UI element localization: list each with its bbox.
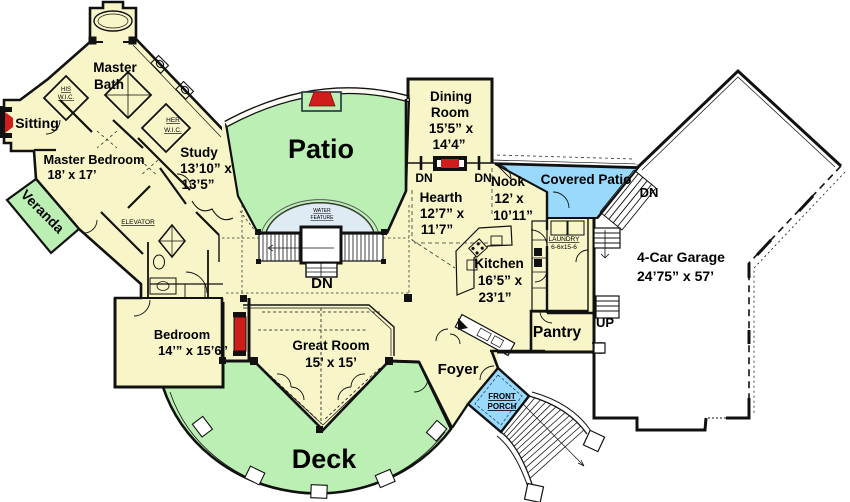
svg-text:Sitting: Sitting bbox=[15, 115, 59, 131]
svg-text:15’5” x: 15’5” x bbox=[429, 121, 474, 136]
svg-text:LAUNDRY: LAUNDRY bbox=[549, 236, 581, 243]
svg-text:13’10” x: 13’10” x bbox=[180, 161, 232, 176]
svg-text:Master: Master bbox=[93, 60, 137, 75]
svg-text:15’ x 15’: 15’ x 15’ bbox=[305, 355, 357, 370]
svg-text:Covered Patio: Covered Patio bbox=[541, 172, 632, 187]
svg-text:Pantry: Pantry bbox=[533, 324, 582, 341]
svg-text:PORCH: PORCH bbox=[488, 402, 517, 411]
svg-text:ELEVATOR: ELEVATOR bbox=[121, 219, 155, 226]
svg-text:Patio: Patio bbox=[288, 134, 354, 164]
svg-text:Room: Room bbox=[431, 105, 469, 120]
svg-text:11’7”: 11’7” bbox=[421, 222, 453, 237]
svg-text:Foyer: Foyer bbox=[438, 361, 479, 378]
svg-text:Deck: Deck bbox=[292, 444, 358, 474]
svg-text:Study: Study bbox=[180, 145, 218, 160]
svg-text:HER: HER bbox=[166, 117, 180, 124]
svg-text:UP: UP bbox=[596, 315, 614, 330]
svg-text:FEATURE: FEATURE bbox=[311, 215, 335, 221]
svg-text:DN: DN bbox=[474, 171, 491, 185]
svg-text:23’1”: 23’1” bbox=[478, 290, 511, 305]
svg-text:13’5”: 13’5” bbox=[181, 177, 214, 192]
svg-text:Hearth: Hearth bbox=[420, 190, 463, 205]
svg-text:Nook: Nook bbox=[491, 174, 525, 189]
svg-text:FRONT: FRONT bbox=[488, 392, 516, 401]
svg-text:W.I.C.: W.I.C. bbox=[58, 95, 75, 101]
svg-text:Dining: Dining bbox=[430, 89, 472, 104]
svg-text:Bath: Bath bbox=[94, 77, 124, 92]
svg-text:18’ x 17’: 18’ x 17’ bbox=[47, 167, 96, 182]
svg-text:W.I.C.: W.I.C. bbox=[164, 127, 182, 134]
svg-text:DN: DN bbox=[640, 185, 659, 200]
svg-text:Kitchen: Kitchen bbox=[474, 256, 524, 271]
svg-text:14’” x 15’6”: 14’” x 15’6” bbox=[158, 343, 228, 358]
svg-text:4-Car Garage: 4-Car Garage bbox=[637, 249, 725, 265]
svg-text:10’11”: 10’11” bbox=[493, 208, 533, 223]
svg-text:WATER: WATER bbox=[313, 208, 331, 214]
svg-text:Bedroom: Bedroom bbox=[154, 327, 210, 342]
svg-text:DN: DN bbox=[415, 171, 432, 185]
svg-text:Great Room: Great Room bbox=[292, 338, 369, 353]
svg-text:6-6x15-6: 6-6x15-6 bbox=[551, 244, 577, 251]
svg-text:14’4”: 14’4” bbox=[432, 137, 465, 152]
svg-text:16’5” x: 16’5” x bbox=[478, 273, 523, 288]
svg-text:12’ x: 12’ x bbox=[494, 191, 524, 206]
svg-text:DN: DN bbox=[311, 275, 333, 292]
svg-text:Master Bedroom: Master Bedroom bbox=[44, 152, 145, 167]
svg-text:24’75” x 57’: 24’75” x 57’ bbox=[637, 268, 714, 284]
svg-text:HIS: HIS bbox=[61, 87, 71, 93]
svg-text:12’7” x: 12’7” x bbox=[420, 206, 465, 221]
